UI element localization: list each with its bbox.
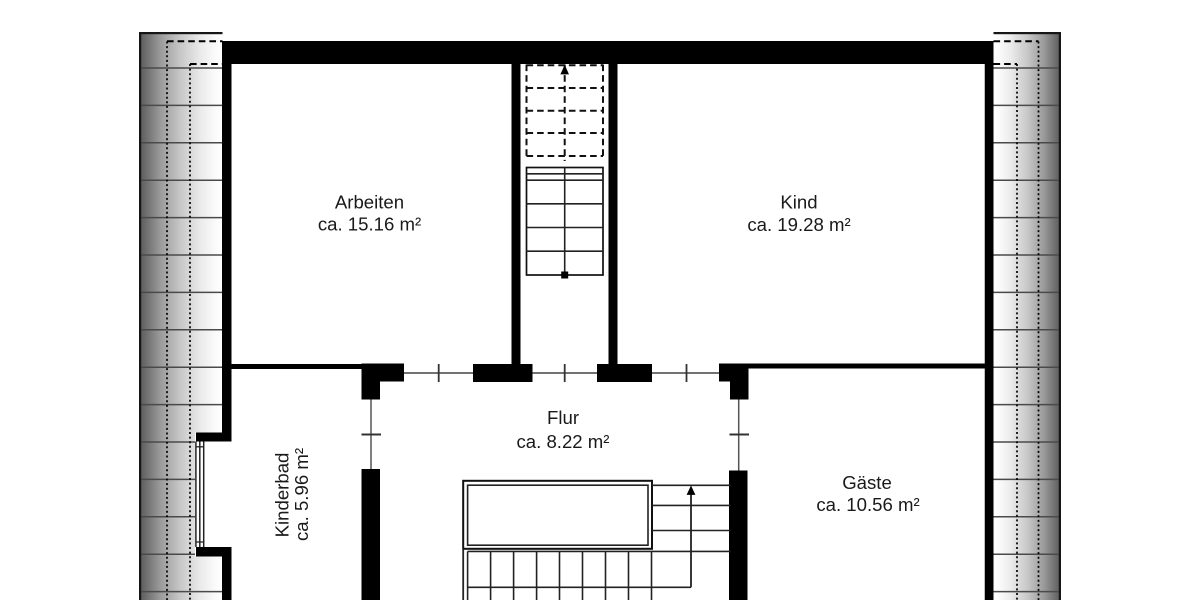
svg-text:ca. 19.28 m²: ca. 19.28 m²	[747, 214, 850, 235]
svg-text:ca. 8.22 m²: ca. 8.22 m²	[516, 431, 609, 452]
svg-text:Gäste: Gäste	[842, 472, 892, 493]
svg-text:ca. 10.56 m²: ca. 10.56 m²	[816, 494, 919, 515]
svg-text:Arbeiten: Arbeiten	[335, 191, 404, 212]
svg-text:Kind: Kind	[780, 191, 817, 212]
svg-text:Flur: Flur	[547, 407, 579, 428]
svg-text:ca. 5.96 m²: ca. 5.96 m²	[291, 448, 312, 541]
svg-text:Kinderbad: Kinderbad	[272, 453, 293, 538]
svg-text:ca. 15.16 m²: ca. 15.16 m²	[318, 214, 421, 235]
